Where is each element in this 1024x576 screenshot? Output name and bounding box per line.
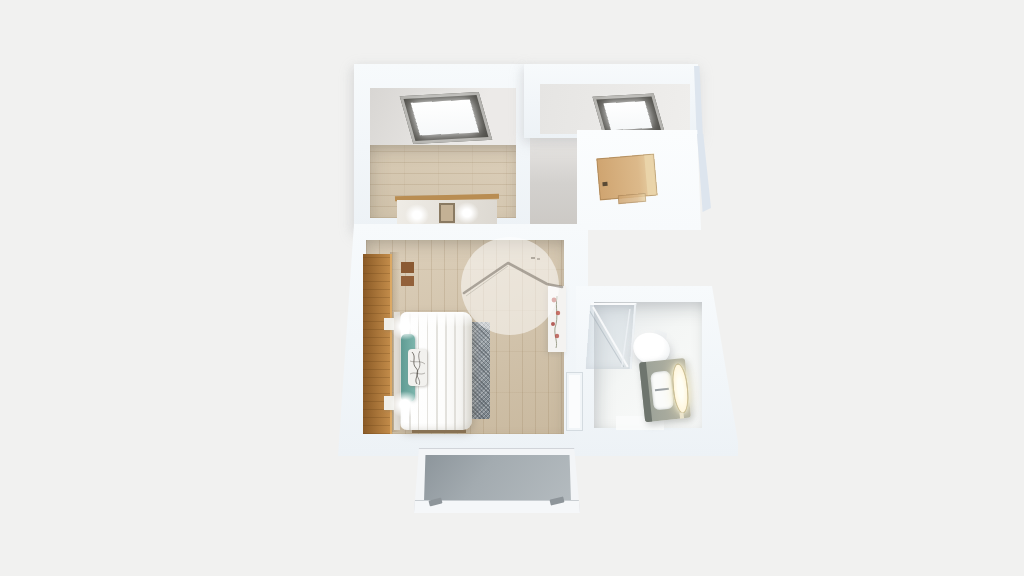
bedside-lamp-glow-icon xyxy=(390,391,420,418)
mirror-dresser xyxy=(395,195,499,229)
bathroom-block xyxy=(576,286,738,456)
shower-glass-edges xyxy=(586,305,634,369)
balcony xyxy=(414,448,580,513)
lamp-glow-icon xyxy=(405,204,429,226)
attic-room-block xyxy=(354,64,524,230)
vanity-unit xyxy=(639,356,693,425)
skylight-glass xyxy=(603,101,652,130)
attic-skylight-icon xyxy=(400,92,493,144)
render-viewport xyxy=(0,0,1024,576)
dormer-block xyxy=(577,130,701,230)
door-handle-icon xyxy=(602,182,607,186)
bedside-lamp-glow-icon xyxy=(390,313,420,340)
door-threshold xyxy=(618,193,647,204)
bathroom-door xyxy=(566,372,583,431)
mirror-reflection-inner xyxy=(441,205,453,221)
mirror-glass xyxy=(397,200,497,228)
door-frame-edge xyxy=(644,155,655,196)
lamp-glow-icon xyxy=(455,202,479,224)
skylight-glass xyxy=(411,100,480,136)
patterned-cushion xyxy=(408,349,427,386)
watermark-house-roof-icon xyxy=(452,232,564,302)
upper-ceiling-slab xyxy=(524,64,698,138)
hallway-back-wall xyxy=(530,130,577,226)
sink-basin xyxy=(650,370,674,410)
glass-shower xyxy=(586,303,637,369)
balcony-floor xyxy=(424,455,571,501)
faucet-icon xyxy=(655,388,669,391)
wall-decor-square xyxy=(401,276,414,286)
wall-decor-square xyxy=(401,262,414,273)
mirror-sparkle xyxy=(679,412,684,418)
mirror-reflection-door xyxy=(439,203,455,223)
cushion-branch-print-icon xyxy=(408,349,427,386)
